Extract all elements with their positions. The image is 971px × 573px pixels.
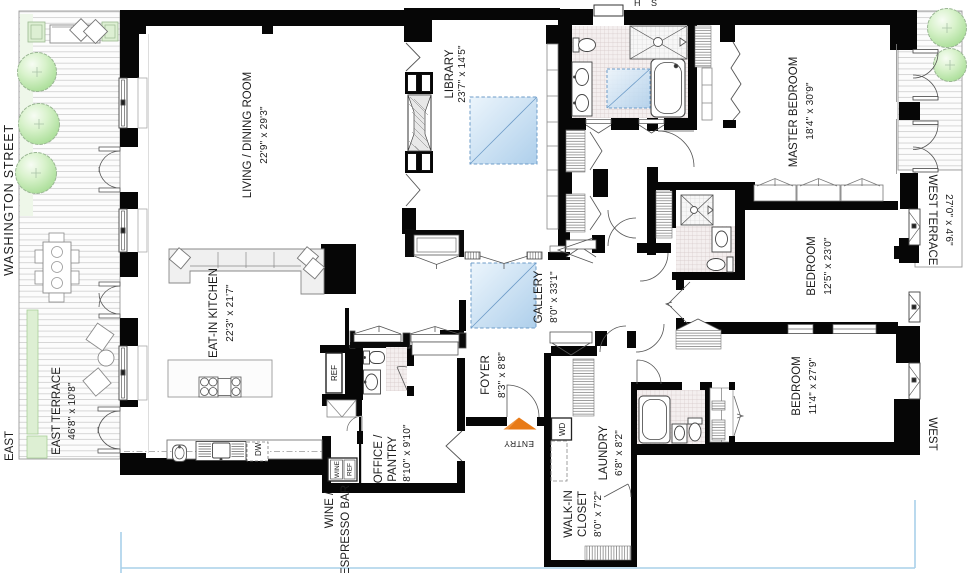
svg-text:ESPRESSO BAR: ESPRESSO BAR [340,485,352,573]
svg-text:22'9" x 29'3": 22'9" x 29'3" [259,106,270,164]
svg-text:REF: REF [330,365,339,381]
svg-text:12'5" x 23'0": 12'5" x 23'0" [823,237,834,295]
svg-text:WEST: WEST [926,417,938,450]
svg-text:8'0" x 7'2": 8'0" x 7'2" [593,491,604,537]
svg-text:8'0" x 33'1": 8'0" x 33'1" [549,271,560,323]
svg-text:WEST TERRACE: WEST TERRACE [926,175,938,266]
svg-text:CLOSET: CLOSET [577,491,589,537]
svg-text:BEDROOM: BEDROOM [806,236,818,295]
svg-text:22'3" x 21'7": 22'3" x 21'7" [225,284,236,342]
svg-text:27'0" x 4'6": 27'0" x 4'6" [943,194,954,246]
svg-text:8'10" x 9'10": 8'10" x 9'10" [402,424,413,482]
svg-text:18'4" x 30'9": 18'4" x 30'9" [805,82,816,140]
svg-text:LAUNDRY: LAUNDRY [598,425,610,480]
svg-text:MASTER BEDROOM: MASTER BEDROOM [788,57,800,168]
svg-text:46'8" x 10'8": 46'8" x 10'8" [67,382,78,440]
svg-text:EAST: EAST [4,431,16,461]
svg-text:REF: REF [347,463,354,476]
svg-text:LIBRARY: LIBRARY [444,49,456,98]
svg-text:ENTRY: ENTRY [504,439,534,449]
svg-text:EAT-IN KITCHEN: EAT-IN KITCHEN [208,268,220,358]
svg-text:DW: DW [254,442,263,456]
svg-text:WALK-IN: WALK-IN [563,490,575,538]
svg-text:EAST TERRACE: EAST TERRACE [51,367,63,455]
svg-text:6'8" x 8'2": 6'8" x 8'2" [614,430,625,476]
svg-text:23'7" x 14'5": 23'7" x 14'5" [457,45,468,103]
svg-text:WD: WD [558,422,567,436]
svg-text:WINE: WINE [334,460,341,478]
svg-text:FOYER: FOYER [480,355,492,395]
svg-text:H: H [634,0,641,8]
svg-text:GALLERY: GALLERY [533,270,545,323]
svg-text:WASHINGTON STREET: WASHINGTON STREET [2,124,16,276]
svg-text:LIVING / DINING ROOM: LIVING / DINING ROOM [242,72,254,199]
svg-text:S: S [651,0,657,8]
svg-text:PANTRY: PANTRY [387,436,399,482]
svg-text:8'3" x 8'8": 8'3" x 8'8" [497,352,508,398]
svg-text:WINE /: WINE / [324,491,336,528]
svg-text:11'4" x 27'9": 11'4" x 27'9" [808,357,819,414]
svg-text:OFFICE /: OFFICE / [373,434,385,483]
svg-text:BEDROOM: BEDROOM [791,356,803,415]
